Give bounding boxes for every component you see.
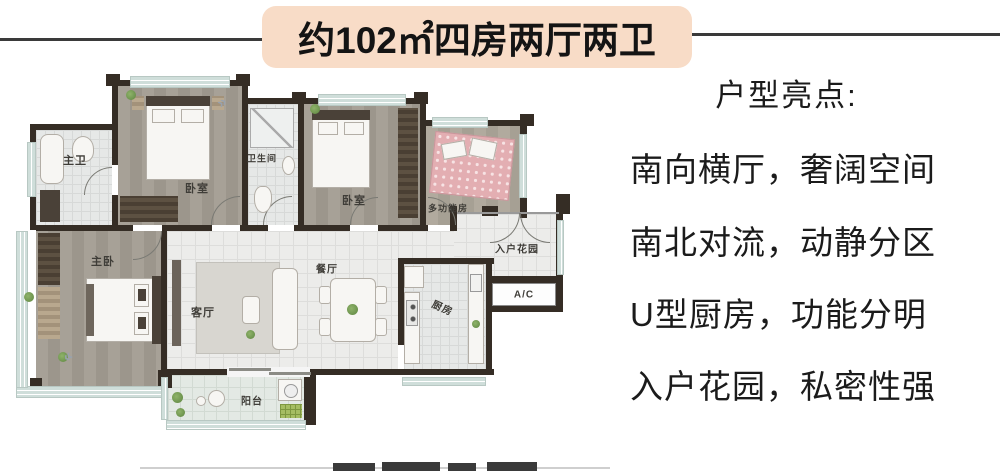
sliding-door-panel	[269, 372, 311, 375]
room-label-dining: 餐厅	[316, 261, 338, 276]
chair	[375, 286, 387, 304]
wall-pillar	[236, 74, 250, 86]
wardrobe	[120, 196, 178, 222]
room-label-entry-garden: 入户花园	[495, 241, 539, 256]
cutoff-rule	[140, 467, 610, 469]
wall-pillar	[292, 92, 306, 104]
wall-segment	[486, 258, 492, 369]
wall-segment	[36, 225, 133, 231]
plant	[126, 90, 136, 100]
window-band	[402, 377, 486, 386]
wall-segment	[161, 231, 167, 369]
bed-bench	[86, 284, 94, 336]
bay-window-band	[16, 231, 28, 388]
wall-segment	[298, 98, 304, 231]
wardrobe	[38, 233, 60, 285]
window-band	[519, 134, 527, 198]
room-label-master-bedroom: 主卧	[91, 253, 115, 269]
cutoff-text-fragment	[382, 462, 440, 471]
wall-segment	[304, 369, 400, 375]
plant	[246, 330, 255, 339]
pillow	[344, 122, 364, 135]
hallway-floor	[398, 231, 454, 258]
chair	[319, 318, 331, 336]
grass-mat	[280, 404, 302, 418]
shower	[250, 108, 294, 148]
washing-machine-door	[284, 384, 298, 398]
stove	[406, 300, 418, 326]
wall-segment	[162, 225, 212, 231]
bay-window-band	[16, 386, 164, 398]
coffee-table	[242, 296, 260, 324]
tv-cabinet	[172, 260, 181, 346]
wall-pillar	[414, 92, 428, 104]
wall-segment	[30, 124, 118, 130]
wall-segment	[486, 306, 563, 312]
wall-segment	[420, 98, 426, 231]
toilet	[254, 186, 272, 213]
table-centerpiece	[347, 304, 358, 315]
window-band	[166, 420, 306, 430]
wall-segment	[112, 124, 118, 165]
sliding-door-panel	[229, 368, 271, 371]
room-label-ac: A/C	[514, 290, 534, 301]
connector-line-right	[688, 33, 1000, 36]
window-band	[318, 94, 406, 106]
highlights-heading: 户型亮点:	[628, 70, 1000, 115]
fridge	[404, 266, 424, 288]
room-label-bedroom2: 卧室	[342, 192, 366, 208]
window-band	[161, 377, 168, 420]
plant	[472, 320, 480, 328]
pillow	[318, 122, 338, 135]
floorplan-flyer: 约102㎡四房两厅两卫	[0, 0, 1000, 472]
plant	[172, 392, 183, 403]
vanity	[40, 190, 60, 222]
room-label-living: 客厅	[191, 304, 215, 320]
window-band	[432, 117, 488, 128]
plant	[176, 408, 185, 417]
room-label-balcony: 阳台	[241, 393, 263, 408]
wall-segment	[304, 369, 316, 425]
wardrobe	[398, 108, 418, 218]
plant	[24, 292, 34, 302]
highlight-line: 南北对流，动静分区	[630, 216, 1000, 264]
highlight-line: U型厨房，功能分明	[630, 288, 1000, 336]
bed-headboard	[152, 276, 161, 344]
room-label-multi-room: 多功能房	[428, 202, 468, 215]
plant	[310, 104, 320, 114]
room-label-bedroom1: 卧室	[185, 180, 209, 196]
wall-segment	[486, 276, 563, 283]
highlight-line: 入户花园，私密性强	[630, 360, 1000, 408]
kitchen-sink	[470, 274, 482, 292]
wall-segment	[112, 80, 118, 130]
highlight-line: 南向横厅，奢阔空间	[630, 143, 1000, 191]
wall-pillar	[106, 74, 120, 86]
accent-pillow	[138, 289, 146, 301]
window-band	[130, 76, 230, 88]
balcony-chair	[196, 396, 206, 406]
wall-segment	[112, 195, 118, 231]
window-band	[27, 142, 36, 197]
pillow	[181, 109, 204, 123]
wall-segment	[398, 369, 494, 375]
floor-plan: »	[0, 0, 640, 472]
chair	[319, 286, 331, 304]
bed-headboard	[312, 110, 370, 120]
bed-headboard	[146, 96, 210, 106]
pillow	[152, 109, 175, 123]
balcony-table	[208, 390, 225, 407]
cutoff-text-fragment	[333, 463, 375, 471]
bathtub	[40, 134, 64, 184]
chair	[375, 318, 387, 336]
sofa	[272, 268, 298, 350]
room-label-master-bath: 主卫	[63, 152, 87, 168]
room-label-bathroom: 卫生间	[247, 152, 277, 165]
wall-pillar	[556, 194, 570, 214]
sink	[282, 156, 295, 175]
window-band	[557, 220, 564, 275]
cutoff-text-fragment	[487, 462, 537, 471]
wardrobe	[38, 287, 60, 339]
accent-pillow	[138, 317, 146, 329]
cutoff-text-fragment	[448, 463, 476, 471]
wall-pillar	[520, 114, 534, 126]
